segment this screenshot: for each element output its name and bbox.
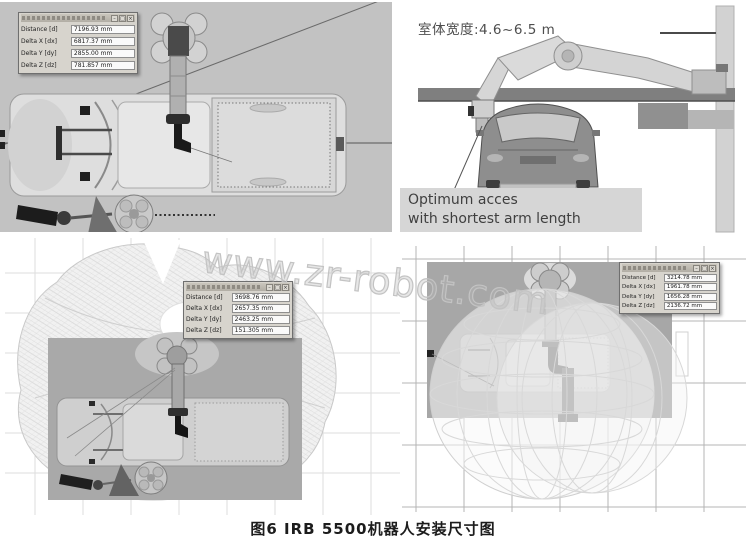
figure-caption: 图6 IRB 5500机器人安装尺寸图 bbox=[0, 518, 746, 539]
measurement-value-field[interactable]: 2136.72 mm bbox=[664, 302, 717, 310]
dialog-titlebar[interactable]: – □ × bbox=[21, 14, 135, 22]
callout-line-2: with shortest arm length bbox=[408, 210, 634, 229]
measurement-value-field[interactable]: 7196.93 mm bbox=[71, 25, 135, 34]
measurement-row: Delta Y [dy] 2463.25 mm bbox=[186, 314, 290, 325]
measurement-value-field[interactable]: 1961.78 mm bbox=[664, 283, 717, 291]
measurement-value-field[interactable]: 6817.37 mm bbox=[71, 37, 135, 46]
measurement-row: Delta Y [dy] 2855.00 mm bbox=[21, 47, 135, 59]
measurement-row: Distance [d] 3214.78 mm bbox=[622, 273, 717, 283]
maximize-icon[interactable]: □ bbox=[701, 265, 708, 272]
dialog-title bbox=[623, 266, 688, 270]
measurement-row: Delta Z [dz] 151.305 mm bbox=[186, 325, 290, 336]
measurement-dialog-top-left: – □ × Distance [d] 7196.93 mm Delta X [d… bbox=[18, 12, 138, 74]
optimum-access-callout: Optimum acces with shortest arm length bbox=[400, 188, 642, 232]
dialog-title bbox=[187, 285, 261, 289]
measurement-label: Delta X [dx] bbox=[622, 284, 662, 290]
minimize-icon[interactable]: – bbox=[266, 284, 273, 291]
measurement-label: Delta X [dx] bbox=[21, 38, 69, 45]
measurement-value-field[interactable]: 3698.76 mm bbox=[232, 293, 290, 302]
measurement-row: Delta Y [dy] 1656.28 mm bbox=[622, 292, 717, 302]
measurement-value-field[interactable]: 151.305 mm bbox=[232, 326, 290, 335]
measurement-dialog-bottom-right: – □ × Distance [d] 3214.78 mm Delta X [d… bbox=[619, 262, 720, 314]
car-front-view bbox=[476, 104, 600, 190]
measurement-row: Delta Z [dz] 2136.72 mm bbox=[622, 302, 717, 312]
measurement-dialog-bottom-left: – □ × Distance [d] 3698.76 mm Delta X [d… bbox=[183, 281, 293, 339]
measurement-label: Delta Z [dz] bbox=[186, 327, 230, 334]
callout-line-1: Optimum acces bbox=[408, 191, 634, 210]
measurement-value-field[interactable]: 1656.28 mm bbox=[664, 293, 717, 301]
measurement-label: Delta Y [dy] bbox=[622, 294, 662, 300]
envelope-top-panel bbox=[5, 238, 400, 515]
measurement-value-field[interactable]: 2657.35 mm bbox=[232, 304, 290, 313]
measurement-row: Delta X [dx] 6817.37 mm bbox=[21, 35, 135, 47]
minimize-icon[interactable]: – bbox=[111, 15, 118, 22]
close-icon[interactable]: × bbox=[282, 284, 289, 291]
measurement-value-field[interactable]: 2463.25 mm bbox=[232, 315, 290, 324]
maximize-icon[interactable]: □ bbox=[274, 284, 281, 291]
measurement-label: Delta Z [dz] bbox=[622, 303, 662, 309]
booth-width-label: 室体宽度:4.6~6.5 m bbox=[418, 18, 555, 38]
measurement-row: Distance [d] 7196.93 mm bbox=[21, 23, 135, 35]
measurement-row: Delta X [dx] 2657.35 mm bbox=[186, 303, 290, 314]
envelope-top-drawing bbox=[5, 238, 400, 515]
minimize-icon[interactable]: – bbox=[693, 265, 700, 272]
close-icon[interactable]: × bbox=[709, 265, 716, 272]
measurement-label: Delta Z [dz] bbox=[21, 62, 69, 69]
dialog-titlebar[interactable]: – □ × bbox=[622, 264, 717, 272]
measurement-value-field[interactable]: 3214.78 mm bbox=[664, 274, 717, 282]
measurement-value-field[interactable]: 781.857 mm bbox=[71, 61, 135, 70]
measurement-label: Delta Y [dy] bbox=[186, 316, 230, 323]
measurement-label: Distance [d] bbox=[21, 26, 69, 33]
dialog-titlebar[interactable]: – □ × bbox=[186, 283, 290, 291]
maximize-icon[interactable]: □ bbox=[119, 15, 126, 22]
measurement-row: Delta Z [dz] 781.857 mm bbox=[21, 59, 135, 71]
measurement-label: Delta Y [dy] bbox=[21, 50, 69, 57]
figure-root: 室体宽度:4.6~6.5 m Optimum acces with shorte… bbox=[0, 0, 746, 544]
measurement-label: Distance [d] bbox=[186, 294, 230, 301]
measurement-row: Distance [d] 3698.76 mm bbox=[186, 292, 290, 303]
measurement-label: Delta X [dx] bbox=[186, 305, 230, 312]
measurement-label: Distance [d] bbox=[622, 275, 662, 281]
measurement-row: Delta X [dx] 1961.78 mm bbox=[622, 283, 717, 293]
close-icon[interactable]: × bbox=[127, 15, 134, 22]
dialog-title bbox=[22, 16, 106, 20]
measurement-value-field[interactable]: 2855.00 mm bbox=[71, 49, 135, 58]
side-view-panel: 室体宽度:4.6~6.5 m Optimum acces with shorte… bbox=[398, 0, 746, 235]
